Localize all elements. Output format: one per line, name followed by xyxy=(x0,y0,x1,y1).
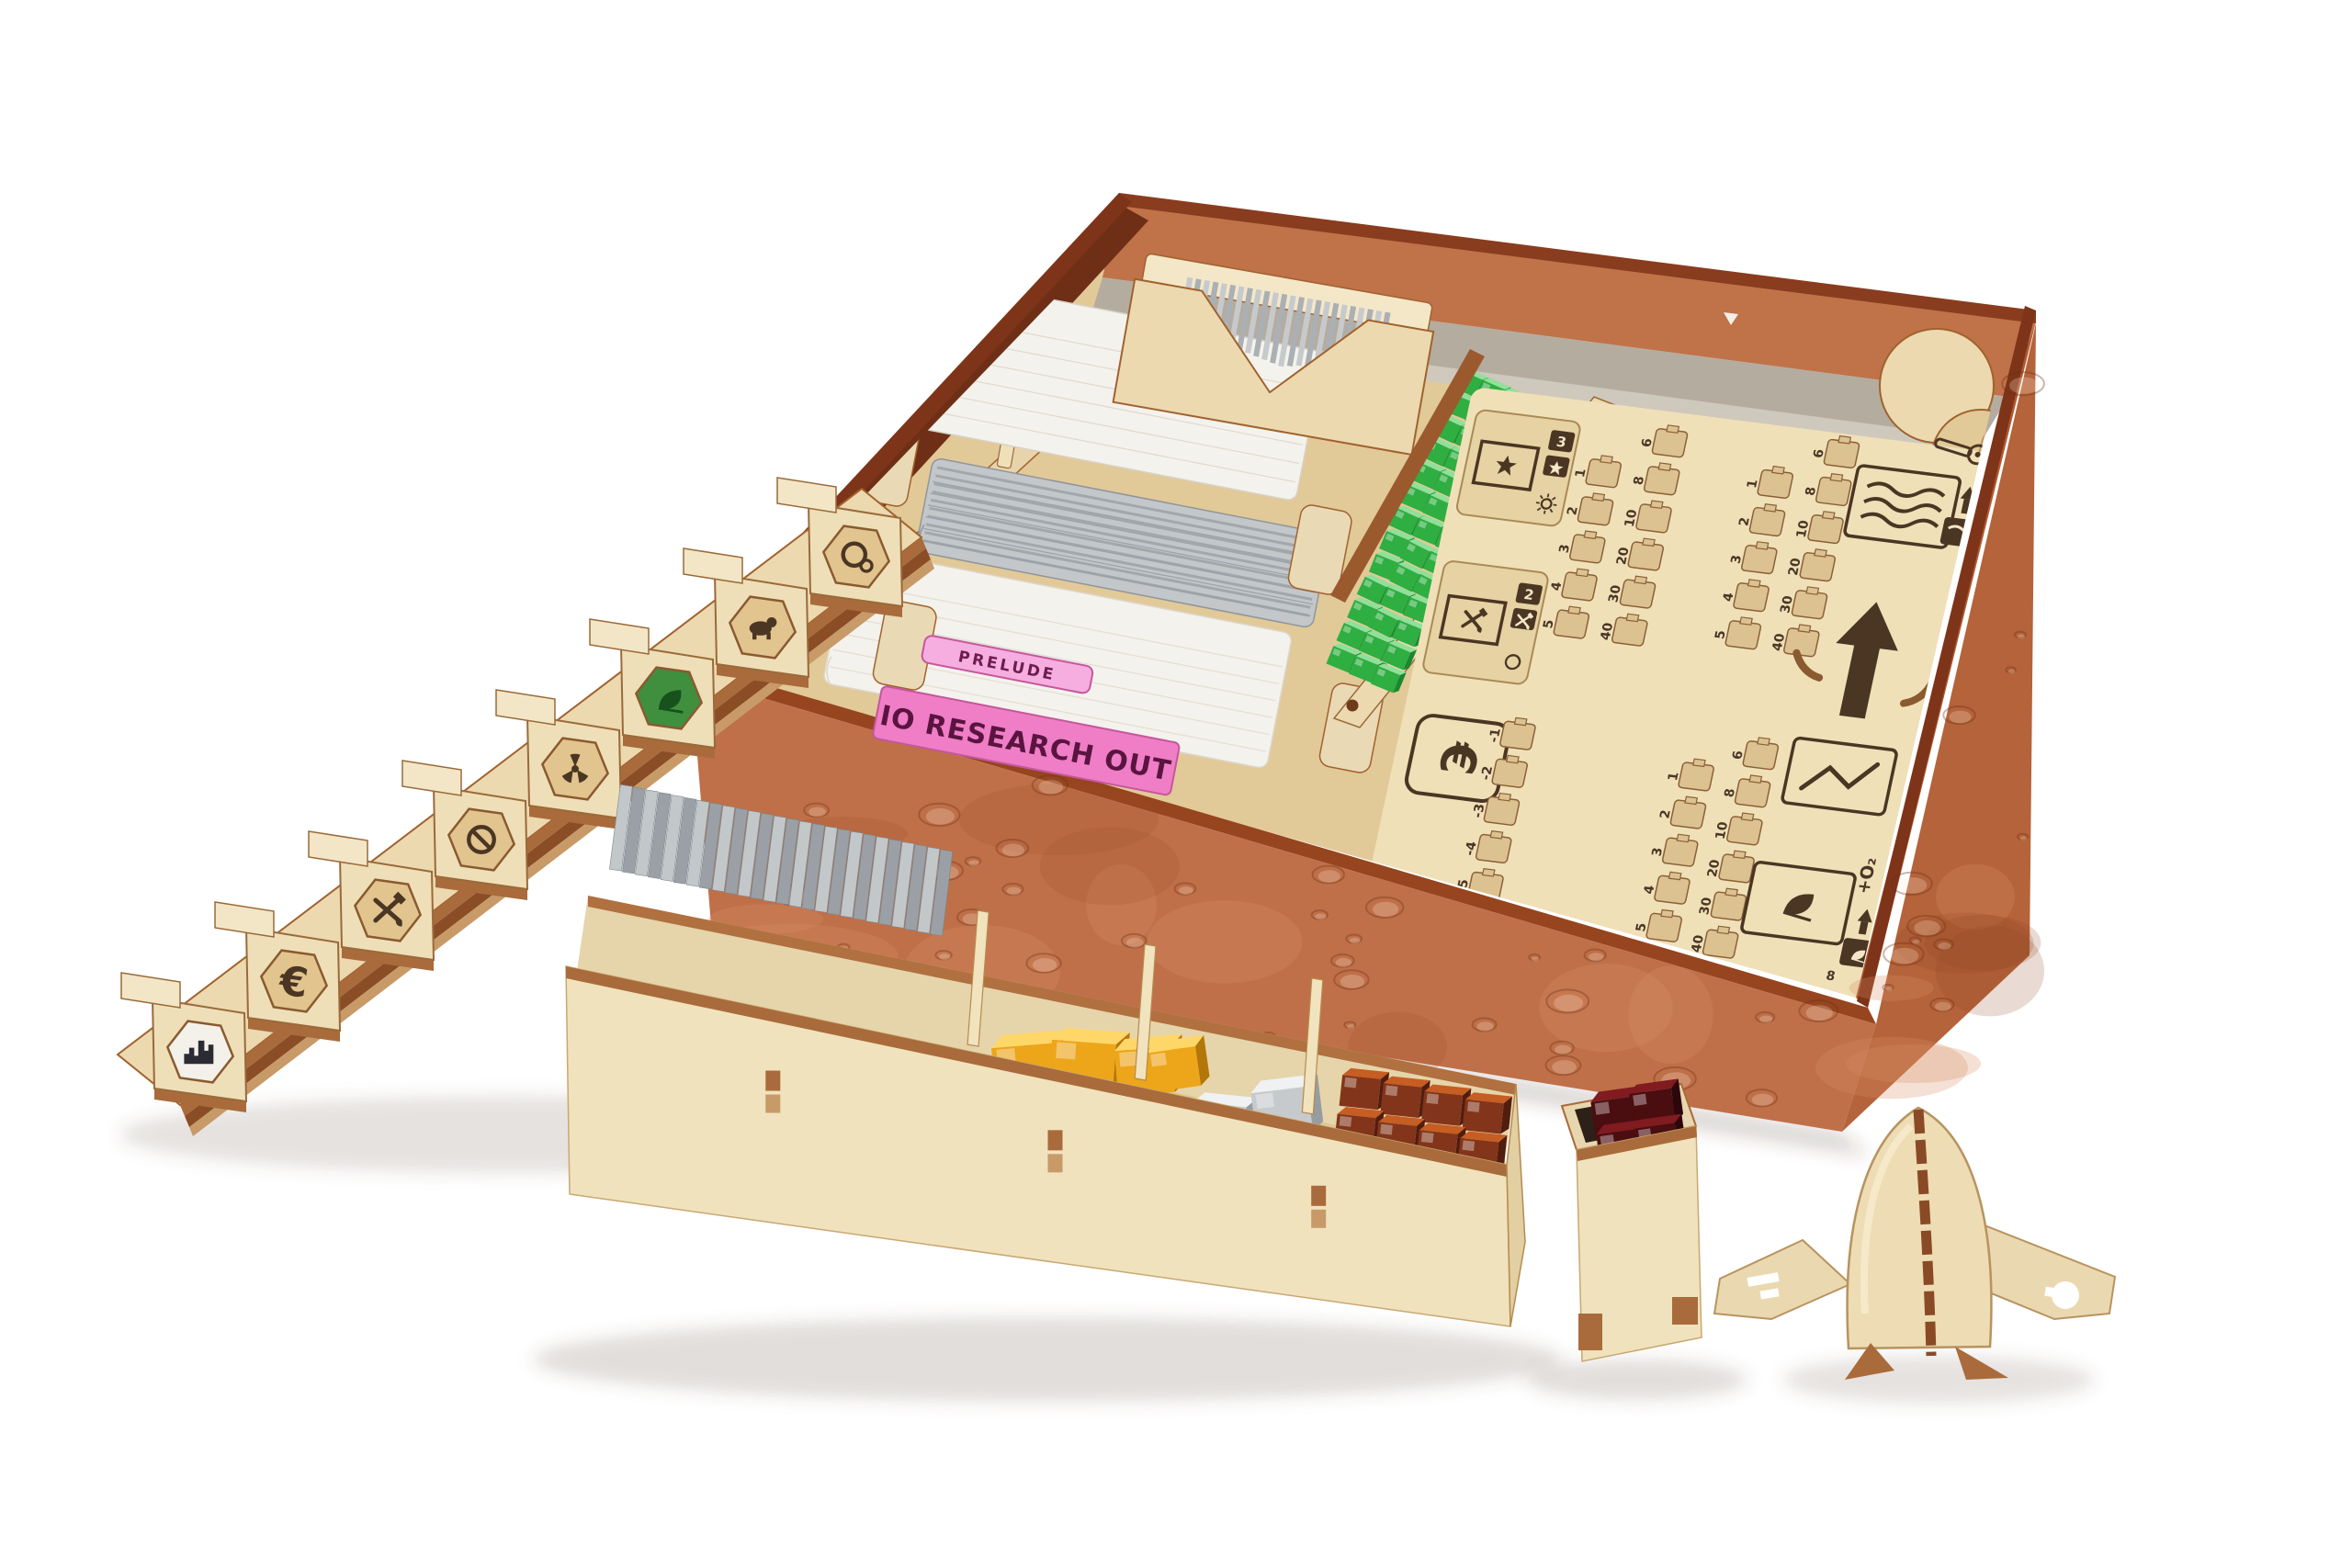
crater-floor xyxy=(808,807,826,818)
tray-notch xyxy=(1311,1186,1326,1206)
crater-floor xyxy=(1914,920,1940,935)
cube-gloss xyxy=(1467,1101,1480,1112)
crater-floor xyxy=(2018,635,2025,639)
card-fan xyxy=(882,394,893,423)
track-slot xyxy=(1807,514,1844,544)
crater-floor xyxy=(1891,948,1919,964)
track-slot xyxy=(1743,740,1780,770)
mottle-patch xyxy=(1147,900,1302,983)
track-number: 1 xyxy=(1573,468,1589,479)
track-slot xyxy=(1783,627,1820,657)
track-slot-nub xyxy=(1661,909,1673,917)
crater-floor xyxy=(1126,938,1144,948)
track-slot-nub xyxy=(1667,425,1679,433)
track-slot xyxy=(1491,759,1528,788)
track-slot xyxy=(1627,542,1664,571)
track-number: 2 xyxy=(1657,809,1674,820)
track-slot-nub xyxy=(1748,580,1760,587)
cube-gloss xyxy=(1256,1092,1274,1109)
track-slot xyxy=(1476,834,1512,863)
mottle-patch xyxy=(1936,926,2044,1017)
track-slot xyxy=(1678,762,1714,792)
rocket-right-fin xyxy=(1973,1222,2115,1319)
mottle-patch xyxy=(1815,1037,1968,1099)
crater-floor xyxy=(1938,942,1951,950)
crater-floor xyxy=(2020,837,2028,840)
track-slot-nub xyxy=(1838,436,1850,444)
track-slot-nub xyxy=(1577,569,1589,576)
crater-floor xyxy=(1007,887,1021,896)
crater-floor xyxy=(2009,378,2039,394)
track-slot xyxy=(1725,620,1762,649)
cube-gloss xyxy=(1119,1051,1137,1066)
product-photo: 32€123456810203040123456810203040-1-2-3-… xyxy=(0,0,2352,1568)
cube-gloss xyxy=(1056,1042,1076,1059)
crater-floor xyxy=(968,860,979,866)
track-slot-nub xyxy=(1758,738,1770,745)
copper-cube xyxy=(1462,1091,1512,1134)
crater-floor xyxy=(1532,957,1539,962)
track-number: -1 xyxy=(1487,728,1504,743)
track-number: 6 xyxy=(1811,448,1827,459)
holder-tab xyxy=(777,478,836,513)
track-slot-nub xyxy=(1823,512,1835,519)
track-slot-nub xyxy=(1483,869,1495,876)
track-number: 3 xyxy=(1556,544,1573,555)
tray-notch xyxy=(765,1095,780,1113)
track-slot-nub xyxy=(1600,456,1612,463)
crater-floor xyxy=(926,808,955,825)
track-slot xyxy=(1554,610,1590,639)
track-slot-nub xyxy=(1514,717,1526,725)
track-slot-nub xyxy=(1717,926,1729,933)
tray-notch xyxy=(1047,1154,1062,1172)
track-slot xyxy=(1792,590,1828,619)
track-slot-nub xyxy=(1677,834,1689,841)
holder-tab xyxy=(590,619,649,654)
track-number: 5 xyxy=(1713,629,1729,640)
track-number: 8 xyxy=(1803,486,1819,497)
track-number: 1 xyxy=(1745,479,1761,490)
track-slot xyxy=(1711,892,1747,921)
track-slot-nub xyxy=(1568,606,1580,614)
track-slot-nub xyxy=(1764,504,1776,512)
track-number: 6 xyxy=(1730,750,1747,761)
crater-floor xyxy=(1935,1002,1951,1011)
crater-floor xyxy=(939,953,950,960)
rail-hole xyxy=(1347,700,1359,712)
cube-gloss xyxy=(1340,1116,1352,1127)
track-slot xyxy=(1799,552,1836,581)
track-slot xyxy=(1662,838,1699,867)
crater-floor xyxy=(1555,1045,1571,1055)
track-slot-nub xyxy=(1740,617,1752,625)
cube-gloss xyxy=(1385,1085,1398,1096)
tray-notch xyxy=(1047,1130,1062,1150)
crater-floor xyxy=(1179,886,1193,895)
rocket-left-fin xyxy=(1714,1240,1850,1319)
crater-floor xyxy=(1476,1021,1493,1031)
track-slot-nub xyxy=(1830,474,1842,481)
track-slot xyxy=(1702,930,1739,959)
track-slot xyxy=(1741,545,1778,574)
track-slot xyxy=(1652,428,1689,457)
cube-front xyxy=(1147,1046,1202,1092)
track-slot xyxy=(1726,817,1763,846)
track-slot-nub xyxy=(1658,463,1670,470)
crater-floor xyxy=(1315,913,1326,919)
tray-notch xyxy=(765,1071,780,1091)
track-slot xyxy=(1815,477,1852,506)
crater-floor xyxy=(1340,975,1364,988)
track-slot xyxy=(1499,721,1536,750)
crater-floor xyxy=(1898,877,1927,894)
track-slot-nub xyxy=(1643,538,1655,546)
red-cube-tray xyxy=(1562,1078,1702,1361)
track-slot xyxy=(1569,535,1606,564)
track-slot-nub xyxy=(1584,531,1596,538)
red-tray-joint1 xyxy=(1578,1314,1602,1350)
track-slot xyxy=(1484,796,1521,826)
track-slot-nub xyxy=(1693,759,1705,766)
track-slot xyxy=(1718,854,1755,884)
track-number: 3 xyxy=(1649,847,1666,858)
mottle-patch xyxy=(1628,966,1713,1065)
track-slot-nub xyxy=(1634,576,1646,583)
crater-floor xyxy=(1318,870,1340,883)
cube-gloss xyxy=(1150,1053,1167,1067)
rocket-standee xyxy=(1714,1108,2115,1380)
track-number: 2 xyxy=(1565,505,1581,516)
track-number: 8 xyxy=(1631,475,1647,486)
crater-floor xyxy=(1373,902,1398,917)
track-slot xyxy=(1824,439,1860,468)
track-slot xyxy=(1645,913,1682,942)
track-slot xyxy=(1644,466,1680,495)
cube-gloss xyxy=(1462,1140,1475,1151)
crater-floor xyxy=(1033,958,1057,972)
track-slot-nub xyxy=(1734,851,1746,858)
crater-floor xyxy=(1759,1015,1772,1022)
track-slot xyxy=(1757,469,1793,499)
track-number: -4 xyxy=(1463,840,1480,856)
red-tray-joint2 xyxy=(1672,1297,1698,1325)
crater-floor xyxy=(1002,844,1024,857)
cube-gloss xyxy=(1380,1124,1393,1135)
track-slot-nub xyxy=(1798,625,1810,632)
track-slot xyxy=(1611,617,1648,647)
track-number: 5 xyxy=(1634,922,1650,933)
track-slot xyxy=(1749,507,1786,536)
crater-floor xyxy=(1552,1060,1576,1074)
holder-tab xyxy=(402,761,461,795)
cube-gloss xyxy=(1633,1094,1646,1106)
track-slot-nub xyxy=(1490,831,1502,839)
track-slot xyxy=(1620,580,1657,609)
track-slot-nub xyxy=(1669,872,1681,879)
track-slot xyxy=(1561,572,1598,602)
track-number: 1 xyxy=(1666,772,1682,783)
track-slot-nub xyxy=(1651,501,1663,508)
track-number: -3 xyxy=(1470,803,1487,818)
gold-cube xyxy=(1145,1035,1211,1093)
track-slot-nub xyxy=(1815,549,1826,557)
crater-floor xyxy=(1752,1094,1773,1106)
holder-tab xyxy=(121,973,180,1008)
cube-gloss xyxy=(1595,1101,1611,1114)
track-slot-nub xyxy=(1498,794,1510,801)
track-number: 3 xyxy=(1728,554,1745,565)
track-slot-nub xyxy=(1626,614,1638,621)
holder-tab xyxy=(215,902,274,937)
cube-gloss xyxy=(1426,1093,1439,1104)
tray-notch xyxy=(1311,1210,1326,1228)
crater-floor xyxy=(1949,711,1971,724)
track-slot-nub xyxy=(1749,775,1761,783)
cube-gloss xyxy=(1344,1077,1357,1089)
track-slot-nub xyxy=(1806,587,1818,594)
crater-floor xyxy=(2008,670,2015,673)
screenshot-root: 32€123456810203040123456810203040-1-2-3-… xyxy=(0,0,2352,1568)
track-slot-nub xyxy=(1725,888,1737,896)
track-slot-nub xyxy=(1592,493,1604,501)
track-slot xyxy=(1670,800,1707,829)
track-slot-nub xyxy=(1756,542,1768,549)
crater-floor xyxy=(1038,780,1063,794)
track-slot-nub xyxy=(1741,813,1753,820)
holder-tab xyxy=(496,690,555,725)
track-slot xyxy=(1733,582,1770,612)
crater-floor xyxy=(1350,938,1361,944)
crater-floor xyxy=(1336,958,1351,967)
cube-gloss xyxy=(1421,1133,1434,1144)
track-slot-nub xyxy=(1772,467,1784,474)
track-slot xyxy=(1635,504,1672,534)
track-slot xyxy=(1654,875,1690,905)
track-number: -2 xyxy=(1478,765,1496,781)
holder-tab xyxy=(309,831,367,866)
track-number: 8 xyxy=(1722,787,1738,798)
crater-floor xyxy=(1347,1024,1354,1029)
track-number: 5 xyxy=(1541,619,1557,630)
track-slot xyxy=(1585,458,1622,488)
track-slot xyxy=(1735,778,1771,807)
crater-floor xyxy=(1885,987,1893,991)
track-slot-nub xyxy=(1507,755,1519,762)
crater-floor xyxy=(1806,1005,1833,1021)
track-number: 6 xyxy=(1639,437,1656,448)
holder-tab xyxy=(684,548,742,583)
crater-floor xyxy=(1589,953,1603,961)
crater-floor xyxy=(1554,995,1583,1011)
track-number: 2 xyxy=(1736,516,1753,527)
track-slot-nub xyxy=(1685,796,1697,804)
track-slot xyxy=(1577,496,1614,525)
